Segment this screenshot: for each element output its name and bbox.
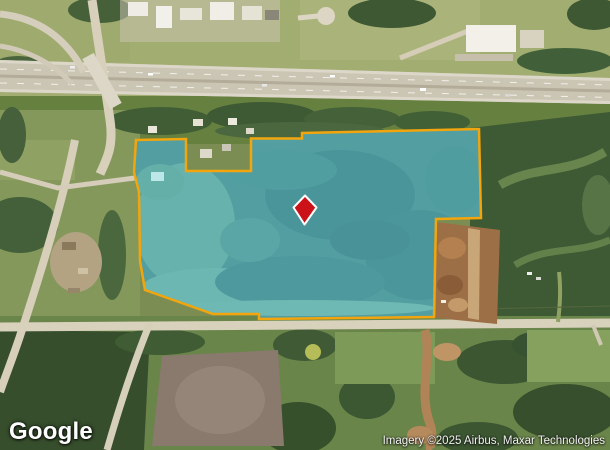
map-attribution: Imagery ©2025 Airbus, Maxar Technologies xyxy=(383,435,605,447)
satellite-imagery xyxy=(0,0,610,450)
highlighted-structure xyxy=(151,172,164,181)
google-logo[interactable]: Google xyxy=(9,418,93,446)
map-canvas[interactable]: Google Imagery ©2025 Airbus, Maxar Techn… xyxy=(0,0,610,450)
parcel-boundary[interactable] xyxy=(134,129,481,319)
